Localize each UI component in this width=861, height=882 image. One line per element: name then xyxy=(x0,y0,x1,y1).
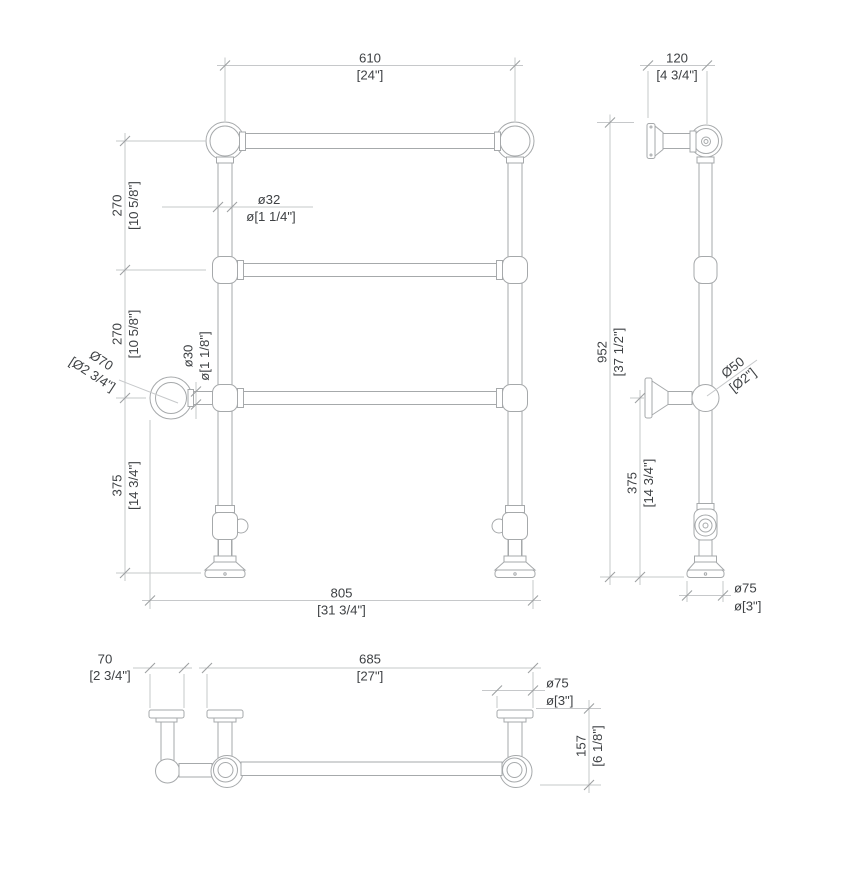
middle-rail xyxy=(213,257,528,284)
dim-front-rail-width: 610 [24"] xyxy=(217,51,523,122)
side-post xyxy=(694,157,717,562)
wall-ring xyxy=(150,377,213,419)
dim-side-bracket-depth-in: [4 3/4"] xyxy=(656,68,697,83)
label-front-post-diameter: ø32 ø[1 1/4"] xyxy=(162,192,313,224)
dim-front-overall-width: 805 [31 3/4"] xyxy=(142,420,541,618)
dim-side-overall-height-mm: 952 xyxy=(595,341,610,363)
dim-top-wall-depth: 157 [6 1/8"] xyxy=(536,700,605,793)
dim-front-base-height-mm: 375 xyxy=(110,474,125,496)
dim-side-foot-diameter-in: ø[3"] xyxy=(734,599,761,614)
dim-front-upper-gap-mm: 270 xyxy=(110,194,125,216)
label-front-rail-diameter-mm: ø30 xyxy=(181,345,196,368)
front-view: 610 [24"] 270 [10 5/8"] 270 [10 5/8"] 37… xyxy=(67,51,541,618)
right-valve-foot xyxy=(492,506,535,578)
dim-side-overall-height-in: [37 1/2"] xyxy=(611,328,626,377)
lower-rail xyxy=(213,385,528,412)
dim-side-foot-diameter: ø75 ø[3"] xyxy=(679,581,761,614)
dim-side-bracket-depth: 120 [4 3/4"] xyxy=(640,51,715,125)
dim-side-foot-diameter-mm: ø75 xyxy=(734,581,757,596)
dim-side-lower-bracket-height-in: [14 3/4"] xyxy=(641,459,656,508)
dim-side-lower-bracket-height: 375 [14 3/4"] xyxy=(625,390,657,585)
dim-top-wall-depth-mm: 157 xyxy=(574,735,589,757)
dim-side-lower-bracket-height-mm: 375 xyxy=(625,472,640,494)
dim-top-ring-flange-width-mm: 70 xyxy=(98,652,113,667)
dim-front-rail-width-mm: 610 xyxy=(359,51,381,66)
dim-front-rail-width-in: [24"] xyxy=(357,68,384,83)
label-front-post-diameter-mm: ø32 xyxy=(258,192,281,207)
left-post xyxy=(217,157,234,562)
top-right-bracket xyxy=(497,710,533,760)
label-front-rail-diameter-in: ø[1 1/8"] xyxy=(197,331,212,380)
top-rail-bar xyxy=(211,756,532,788)
side-top-bracket xyxy=(647,124,696,159)
top-rail xyxy=(240,132,501,151)
technical-drawing: 610 [24"] 270 [10 5/8"] 270 [10 5/8"] 37… xyxy=(0,0,861,882)
dim-top-flange-diameter: ø75 ø[3"] xyxy=(482,676,573,709)
dim-top-flange-diameter-mm: ø75 xyxy=(546,676,569,691)
dim-side-overall-height: 952 [37 1/2"] xyxy=(595,115,685,586)
dim-side-bracket-depth-mm: 120 xyxy=(666,51,688,66)
dim-front-lower-gap-in: [10 5/8"] xyxy=(126,310,141,359)
dim-top-bracket-span: 685 [27"] xyxy=(199,652,541,709)
top-view: 70 [2 3/4"] 685 [27"] ø75 ø[3"] xyxy=(89,652,605,794)
right-post xyxy=(507,157,524,562)
dim-front-upper-gap-in: [10 5/8"] xyxy=(126,181,141,230)
top-left-elbow xyxy=(206,122,244,160)
side-view: 120 [4 3/4"] 952 [37 1/2"] 375 [14 3/4"] xyxy=(595,51,762,614)
dim-front-lower-gap-mm: 270 xyxy=(110,323,125,345)
top-left-bracket xyxy=(207,710,243,760)
dim-front-base-height-in: [14 3/4"] xyxy=(126,461,141,510)
top-ring-bracket xyxy=(149,710,212,783)
dim-top-bracket-span-in: [27"] xyxy=(357,669,384,684)
top-right-elbow xyxy=(496,122,534,160)
label-front-post-diameter-in: ø[1 1/4"] xyxy=(246,209,295,224)
dim-front-overall-width-mm: 805 xyxy=(330,586,352,601)
dim-front-overall-width-in: [31 3/4"] xyxy=(317,603,366,618)
drawing-canvas: 610 [24"] 270 [10 5/8"] 270 [10 5/8"] 37… xyxy=(0,0,861,882)
dim-top-wall-depth-in: [6 1/8"] xyxy=(590,725,605,766)
dim-top-bracket-span-mm: 685 xyxy=(359,652,381,667)
dim-top-ring-flange-width-in: [2 3/4"] xyxy=(89,668,130,683)
dim-top-flange-diameter-in: ø[3"] xyxy=(546,693,573,708)
side-valve-foot xyxy=(687,504,724,578)
dim-top-ring-flange-width: 70 [2 3/4"] xyxy=(89,652,192,709)
left-valve-foot xyxy=(205,506,248,578)
